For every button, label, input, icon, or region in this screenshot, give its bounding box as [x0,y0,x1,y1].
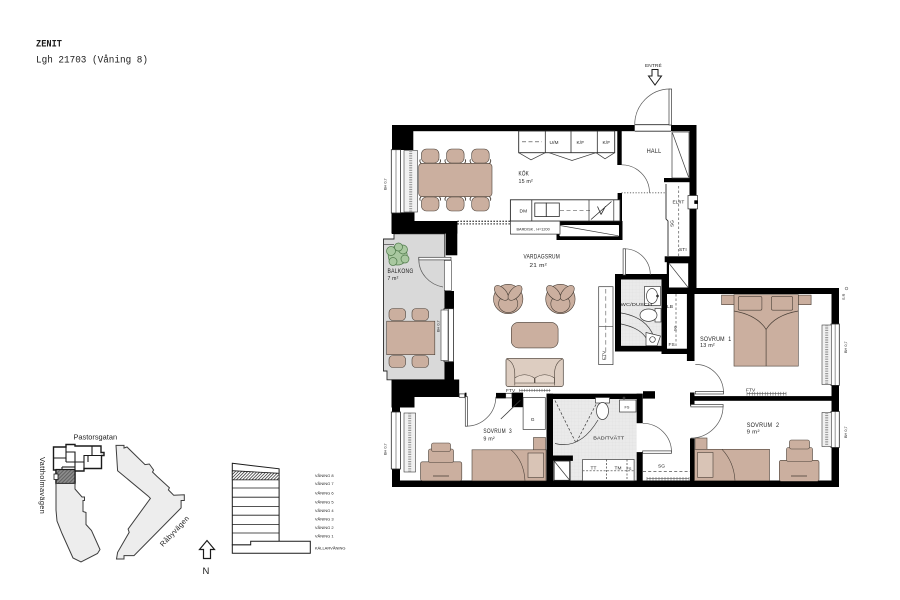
svg-text:S R: S R [842,293,846,300]
svg-text:HALL: HALL [647,148,662,155]
svg-text:13 m²: 13 m² [700,343,715,349]
svg-text:Vattholmavägen: Vattholmavägen [38,457,47,514]
svg-text:7 m²: 7 m² [388,276,399,282]
svg-text:BH 0,7: BH 0,7 [844,426,848,438]
svg-text:BAD/TVÄTT: BAD/TVÄTT [593,435,624,442]
svg-text:STI: STI [679,247,687,253]
svg-text:VARDAGSRUM: VARDAGSRUM [524,254,561,261]
svg-text:VÅNING 2: VÅNING 2 [315,525,334,530]
svg-text:FTV: FTV [746,387,756,393]
svg-text:TT: TT [591,466,597,472]
svg-text:21 m²: 21 m² [530,263,548,269]
svg-text:BARDISK , H=1200: BARDISK , H=1200 [517,228,550,232]
svg-text:SG: SG [658,464,665,470]
svg-text:EL/IT: EL/IT [673,199,685,205]
svg-text:VÅNING 3: VÅNING 3 [315,516,334,521]
svg-text:ZENIT: ZENIT [36,40,62,51]
svg-text:VÅNING 7: VÅNING 7 [315,481,334,486]
svg-text:9 m²: 9 m² [483,437,495,443]
svg-text:SOVRUM 3: SOVRUM 3 [483,428,512,435]
svg-text:FTV: FTV [506,388,516,394]
svg-text:K/F: K/F [577,140,585,146]
svg-text:FS: FS [625,406,630,410]
svg-text:SG: SG [674,325,678,331]
svg-text:Lgh 21703 (Våning 8): Lgh 21703 (Våning 8) [36,54,148,67]
svg-text:DM: DM [520,209,528,215]
svg-text:SG: SG [670,220,676,227]
svg-text:SOVRUM 2: SOVRUM 2 [747,422,780,429]
svg-text:KÖK: KÖK [519,170,530,178]
svg-text:VÅNING 5: VÅNING 5 [315,499,334,504]
svg-text:FTV: FTV [602,350,608,360]
svg-text:LB: LB [667,304,673,310]
svg-text:BH 0,7: BH 0,7 [437,320,441,332]
svg-text:VÅNING 8: VÅNING 8 [315,473,334,478]
svg-text:VÅNING 6: VÅNING 6 [315,490,334,495]
svg-text:VÅNING 4: VÅNING 4 [315,508,334,513]
svg-text:BH 0,7: BH 0,7 [384,443,388,455]
svg-text:VÅNING 1: VÅNING 1 [315,534,334,539]
svg-text:9 m²: 9 m² [747,430,760,436]
svg-text:BH 0,7: BH 0,7 [384,178,388,190]
svg-text:KÄLLARVÅNING: KÄLLARVÅNING [315,545,346,550]
svg-text:FS: FS [669,342,675,348]
svg-text:G: G [531,417,535,423]
svg-text:WC/DUSCH: WC/DUSCH [621,302,653,308]
svg-text:TM: TM [615,466,622,472]
svg-text:K/F: K/F [603,140,611,146]
svg-text:ENTRÉ: ENTRÉ [645,62,662,69]
svg-text:Pastorsgatan: Pastorsgatan [74,433,118,442]
svg-text:U/M: U/M [550,140,559,146]
svg-text:N: N [203,566,210,577]
svg-text:15 m²: 15 m² [519,179,534,185]
svg-text:BALKONG: BALKONG [388,268,414,275]
svg-text:SOVRUM 1: SOVRUM 1 [700,336,731,343]
svg-text:FS: FS [627,467,632,471]
svg-text:BH 0,7: BH 0,7 [844,341,848,353]
